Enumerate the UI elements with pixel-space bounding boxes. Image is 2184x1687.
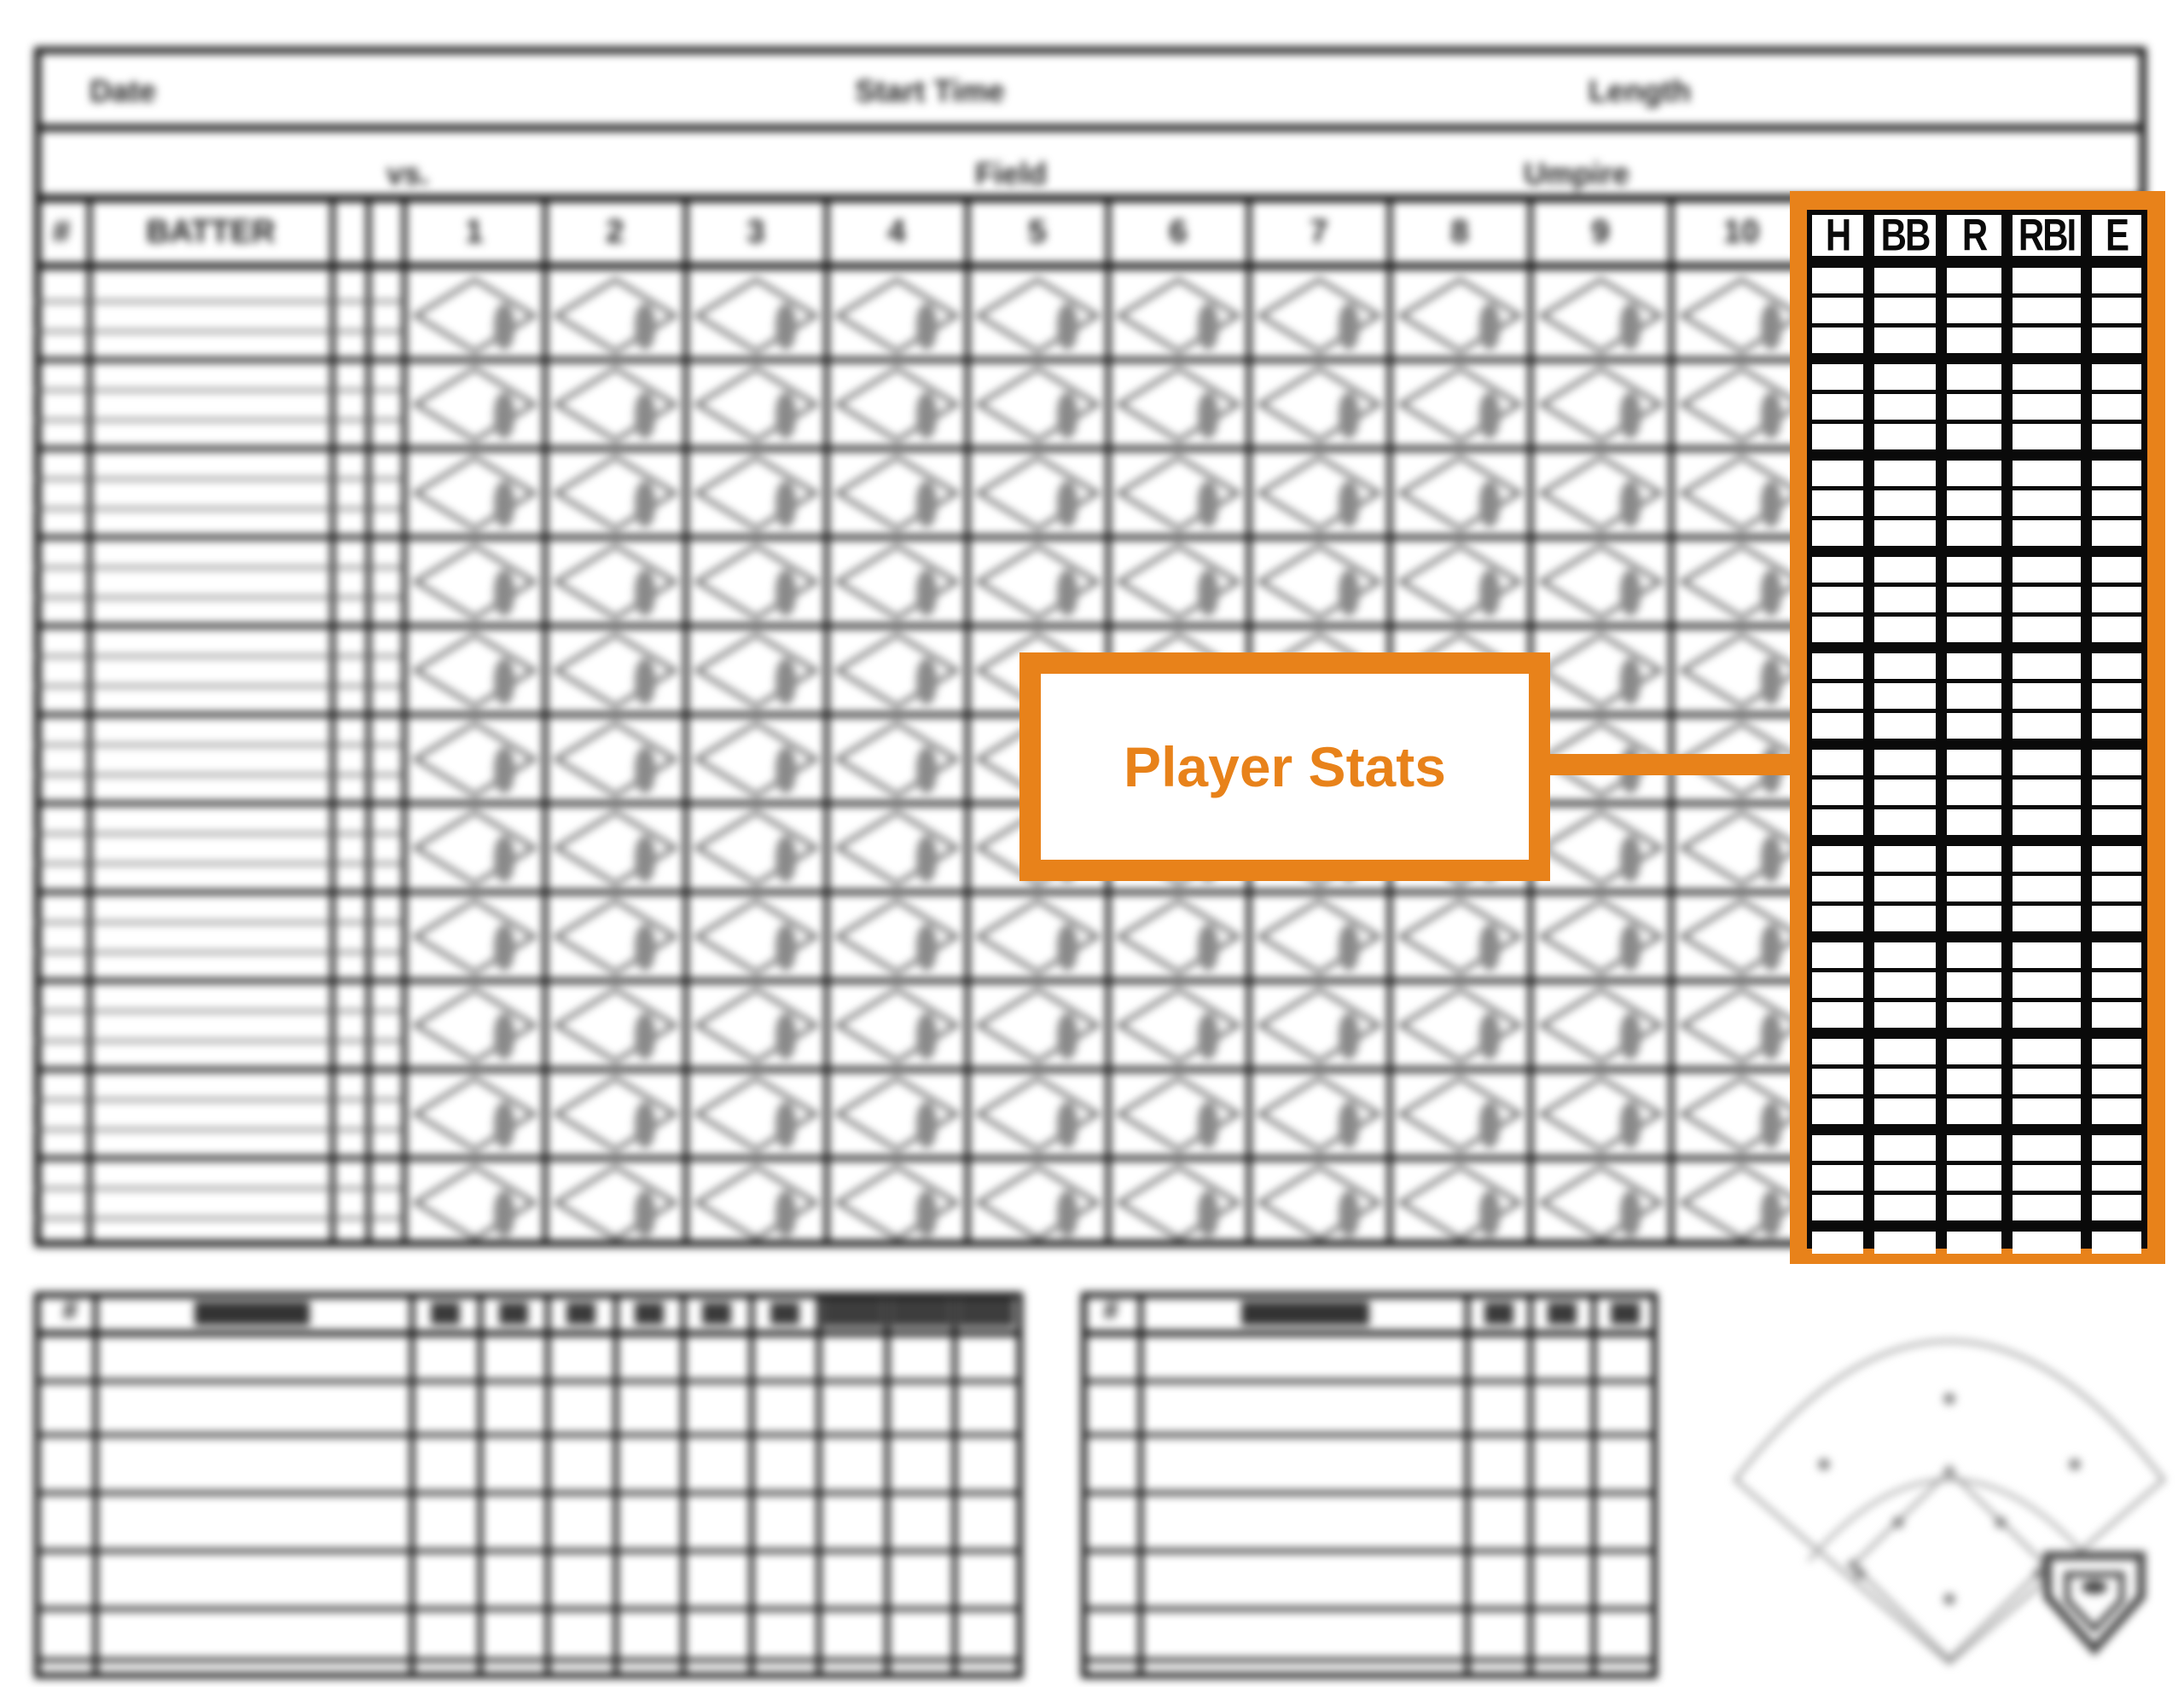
stats-cell — [2092, 520, 2141, 546]
stats-row — [1812, 424, 2142, 449]
stats-row — [1812, 1165, 2142, 1191]
stats-cell — [2013, 394, 2081, 420]
stats-cell — [1947, 1165, 2001, 1191]
stats-cell — [2092, 1069, 2141, 1094]
stats-cell — [2092, 298, 2141, 323]
stats-cell — [1947, 424, 2001, 449]
bench-row-line — [1081, 1549, 1658, 1553]
stats-cell — [1874, 328, 1936, 353]
stats-cell — [1947, 461, 2001, 486]
stats-cell — [1947, 942, 2001, 968]
stats-row — [1812, 1232, 2142, 1254]
stats-header-row: HBBRRBIE — [1812, 215, 2142, 256]
stats-cell — [1874, 424, 1936, 449]
stats-cell — [1947, 653, 2001, 679]
stats-cell — [1947, 268, 2001, 293]
bench-row-line — [1081, 1658, 1658, 1662]
stats-cell — [2013, 587, 2081, 612]
stats-cell — [1947, 1099, 2001, 1124]
stats-cell — [2013, 490, 2081, 516]
stats-row — [1812, 683, 2142, 709]
stats-row — [1812, 328, 2142, 353]
stats-cell — [1874, 809, 1936, 835]
stats-cell — [1874, 1099, 1936, 1124]
stats-cell — [2013, 298, 2081, 323]
stats-cell — [1947, 557, 2001, 583]
stats-column-label: RBI — [2018, 210, 2075, 261]
stats-cell — [2013, 617, 2081, 642]
stats-header-cell: H — [1812, 215, 1863, 256]
stats-cell — [1874, 876, 1936, 901]
stats-cell — [2013, 364, 2081, 390]
stats-cell — [1947, 846, 2001, 872]
stats-column-label: BB — [1881, 210, 1930, 261]
stats-cell — [1812, 587, 1863, 612]
stats-cell — [1874, 461, 1936, 486]
stats-cell — [1947, 587, 2001, 612]
stats-cell — [2092, 1002, 2141, 1028]
stats-header-cell: BB — [1874, 215, 1936, 256]
stats-cell — [1812, 876, 1863, 901]
stats-cell — [2013, 424, 2081, 449]
stats-cell — [2013, 846, 2081, 872]
bench-stat-header-smudge — [1484, 1302, 1513, 1325]
stats-cell — [1874, 713, 1936, 739]
stats-cell — [1874, 972, 1936, 998]
stats-cell — [2013, 1165, 2081, 1191]
stats-cell — [1947, 1039, 2001, 1064]
stats-cell — [2013, 809, 2081, 835]
stats-cell — [2092, 1195, 2141, 1220]
bench-vline — [1591, 1292, 1596, 1678]
stats-cell — [1812, 364, 1863, 390]
stats-cell — [2092, 461, 2141, 486]
stats-cell — [1874, 653, 1936, 679]
stats-cell — [1874, 268, 1936, 293]
stats-row — [1812, 906, 2142, 931]
stats-row — [1812, 846, 2142, 872]
stats-cell — [1812, 906, 1863, 931]
stats-cell — [2013, 461, 2081, 486]
stats-cell — [1812, 1165, 1863, 1191]
stats-cell — [2013, 1135, 2081, 1161]
bench-vline — [1528, 1292, 1533, 1678]
stats-cell — [1874, 520, 1936, 546]
bench-stat-header-smudge — [1611, 1302, 1640, 1325]
bench-vline — [1465, 1292, 1470, 1678]
stats-cell — [1812, 617, 1863, 642]
stats-cell — [2092, 846, 2141, 872]
stats-cell — [1812, 1099, 1863, 1124]
stats-cell — [1812, 268, 1863, 293]
stats-cell — [1812, 653, 1863, 679]
callout-connector-line — [1548, 754, 1792, 775]
stats-cell — [1947, 490, 2001, 516]
stats-cell — [2013, 653, 2081, 679]
stats-cell — [2092, 1232, 2141, 1254]
stats-row — [1812, 490, 2142, 516]
stats-cell — [1947, 780, 2001, 805]
stats-cell — [2092, 328, 2141, 353]
stats-row — [1812, 617, 2142, 642]
stats-header-cell: R — [1947, 215, 2001, 256]
stats-cell — [1874, 587, 1936, 612]
stats-cell — [2013, 906, 2081, 931]
stats-column-label: E — [2106, 210, 2128, 261]
stats-cell — [2013, 1195, 2081, 1220]
stats-cell — [2092, 972, 2141, 998]
stats-cell — [2092, 490, 2141, 516]
stats-cell — [1812, 1069, 1863, 1094]
bench-row-line — [1081, 1433, 1658, 1437]
bench-number-header: # — [1085, 1295, 1136, 1326]
stats-cell — [1874, 394, 1936, 420]
stats-cell — [1947, 713, 2001, 739]
stats-cell — [1812, 1002, 1863, 1028]
scorecard-screenshot: Date Start Time Length vs. Field Umpire … — [0, 0, 2184, 1687]
stats-cell — [2013, 683, 2081, 709]
bench-row-line — [1081, 1607, 1658, 1611]
stats-cell — [2013, 972, 2081, 998]
stats-cell — [2013, 1002, 2081, 1028]
stats-cell — [2013, 268, 2081, 293]
stats-row — [1812, 653, 2142, 679]
stats-cell — [1812, 809, 1863, 835]
stats-cell — [1874, 1135, 1936, 1161]
stats-cell — [2013, 328, 2081, 353]
stats-cell — [1874, 1195, 1936, 1220]
stats-row — [1812, 520, 2142, 546]
stats-cell — [2092, 1039, 2141, 1064]
stats-cell — [2092, 906, 2141, 931]
stats-cell — [1874, 780, 1936, 805]
stats-cell — [1812, 942, 1863, 968]
home-plate-logo — [2035, 1545, 2154, 1661]
stats-row — [1812, 876, 2142, 901]
stats-cell — [1874, 557, 1936, 583]
stats-cell — [1947, 809, 2001, 835]
stats-cell — [1947, 617, 2001, 642]
stats-cell — [2092, 780, 2141, 805]
stats-cell — [1812, 1135, 1863, 1161]
stats-header-cell: RBI — [2013, 215, 2081, 256]
bench-row-line — [1081, 1491, 1658, 1495]
stats-column-label: R — [1962, 210, 1986, 261]
stats-cell — [2092, 1135, 2141, 1161]
stats-cell — [1812, 1232, 1863, 1254]
stats-cell — [1947, 328, 2001, 353]
bench-row-line — [1081, 1330, 1658, 1336]
stats-cell — [1812, 780, 1863, 805]
bench-row-line — [1081, 1379, 1658, 1383]
stats-cell — [1874, 298, 1936, 323]
stats-row — [1812, 972, 2142, 998]
stats-cell — [2092, 683, 2141, 709]
stats-row — [1812, 1135, 2142, 1161]
stats-cell — [1812, 520, 1863, 546]
stats-cell — [1947, 1069, 2001, 1094]
stats-cell — [2092, 713, 2141, 739]
stats-cell — [1812, 424, 1863, 449]
stats-cell — [2013, 750, 2081, 775]
stats-row — [1812, 394, 2142, 420]
stats-cell — [2092, 587, 2141, 612]
stats-cell — [2092, 653, 2141, 679]
stats-row — [1812, 1195, 2142, 1220]
stats-cell — [2092, 617, 2141, 642]
stats-cell — [1812, 683, 1863, 709]
stats-cell — [1812, 490, 1863, 516]
stats-cell — [1874, 750, 1936, 775]
stats-cell — [1947, 906, 2001, 931]
stats-column-label: H — [1826, 210, 1850, 261]
stats-cell — [2092, 394, 2141, 420]
stats-header-cell: E — [2092, 215, 2141, 256]
stats-row — [1812, 364, 2142, 390]
stats-cell — [1812, 713, 1863, 739]
stats-cell — [1947, 750, 2001, 775]
stats-cell — [1874, 942, 1936, 968]
stats-cell — [2092, 942, 2141, 968]
stats-cell — [1947, 683, 2001, 709]
player-stats-callout-label: Player Stats — [1124, 734, 1446, 799]
stats-cell — [1812, 1195, 1863, 1220]
stats-cell — [1947, 394, 2001, 420]
stats-cell — [1947, 1002, 2001, 1028]
stats-cell — [2092, 1099, 2141, 1124]
stats-row — [1812, 557, 2142, 583]
stats-cell — [1947, 364, 2001, 390]
bench-stat-header-smudge — [1548, 1302, 1577, 1325]
stats-cell — [1812, 461, 1863, 486]
stats-cell — [1874, 364, 1936, 390]
player-stats-callout: Player Stats — [1019, 652, 1550, 881]
stats-cell — [1812, 846, 1863, 872]
stats-cell — [2092, 809, 2141, 835]
stats-row — [1812, 1002, 2142, 1028]
stats-cell — [2092, 1165, 2141, 1191]
stats-cell — [1947, 298, 2001, 323]
stats-cell — [2013, 942, 2081, 968]
stats-row — [1812, 298, 2142, 323]
stats-row — [1812, 461, 2142, 486]
stats-cell — [2013, 1232, 2081, 1254]
stats-cell — [2013, 876, 2081, 901]
stats-cell — [2013, 713, 2081, 739]
stats-cell — [1874, 617, 1936, 642]
stats-cell — [1874, 683, 1936, 709]
stats-row — [1812, 942, 2142, 968]
stats-cell — [2092, 557, 2141, 583]
bench-name-header-smudge — [1241, 1301, 1369, 1325]
stats-cell — [1812, 328, 1863, 353]
stats-row — [1812, 1099, 2142, 1124]
stats-cell — [1947, 1232, 2001, 1254]
stats-row — [1812, 713, 2142, 739]
stats-cell — [2013, 1039, 2081, 1064]
stats-cell — [1947, 876, 2001, 901]
stats-cell — [1874, 846, 1936, 872]
stats-cell — [1947, 520, 2001, 546]
stats-row — [1812, 1039, 2142, 1064]
stats-cell — [2092, 364, 2141, 390]
stats-row — [1812, 268, 2142, 293]
stats-cell — [1947, 1195, 2001, 1220]
stats-cell — [1874, 906, 1936, 931]
stats-cell — [1812, 1039, 1863, 1064]
stats-cell — [1947, 1135, 2001, 1161]
player-stats-panel: HBBRRBIE — [1790, 191, 2165, 1264]
bench-vline — [1138, 1292, 1143, 1678]
stats-cell — [1874, 1232, 1936, 1254]
stats-cell — [2013, 520, 2081, 546]
stats-cell — [1812, 298, 1863, 323]
stats-cell — [1812, 972, 1863, 998]
stats-cell — [1874, 1002, 1936, 1028]
stats-cell — [2092, 750, 2141, 775]
stats-cell — [2092, 268, 2141, 293]
player-stats-table: HBBRRBIE — [1807, 210, 2147, 1249]
stats-row — [1812, 587, 2142, 612]
stats-cell — [1874, 1069, 1936, 1094]
stats-cell — [1947, 972, 2001, 998]
stats-cell — [1812, 557, 1863, 583]
stats-row — [1812, 809, 2142, 835]
stats-cell — [2013, 1069, 2081, 1094]
stats-cell — [1812, 750, 1863, 775]
stats-cell — [1812, 394, 1863, 420]
stats-cell — [2092, 424, 2141, 449]
stats-row — [1812, 1069, 2142, 1094]
stats-cell — [1874, 1165, 1936, 1191]
stats-row — [1812, 780, 2142, 805]
stats-cell — [2092, 876, 2141, 901]
stats-row — [1812, 750, 2142, 775]
stats-cell — [2013, 780, 2081, 805]
stats-cell — [1874, 1039, 1936, 1064]
stats-cell — [1874, 490, 1936, 516]
stats-cell — [2013, 557, 2081, 583]
stats-cell — [2013, 1099, 2081, 1124]
